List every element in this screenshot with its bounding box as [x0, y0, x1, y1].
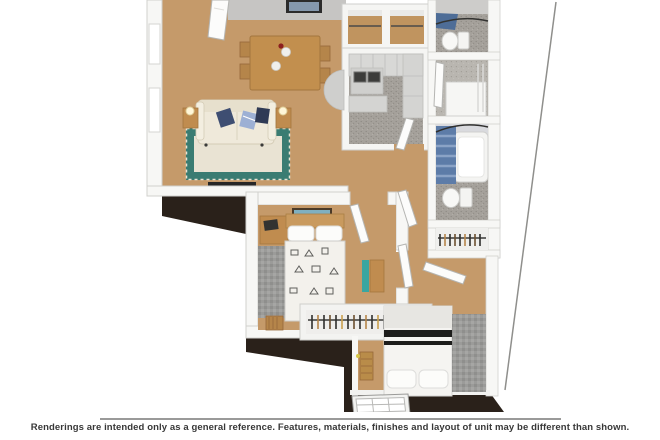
bedroom-2-west-wall: [352, 336, 358, 398]
plate: [282, 48, 291, 57]
dresser: [370, 260, 384, 292]
bath-west-wall: [428, 0, 436, 258]
bathroom-2: [436, 124, 488, 220]
yellow-item: [356, 354, 360, 358]
floor-plan-page: Renderings are intended only as a genera…: [0, 0, 660, 440]
pillow-dark-navy: [255, 107, 270, 124]
bathtub-2-basin: [458, 137, 484, 177]
wall-art-picture: [289, 2, 319, 11]
computer-monitor: [263, 219, 278, 231]
bathroom-1: [436, 0, 488, 52]
lamp-left: [186, 107, 194, 115]
living-room-west-wall: [147, 0, 162, 196]
window-living-2: [149, 88, 160, 132]
building-outer-edge: [505, 2, 556, 390]
dining-table: [250, 36, 320, 90]
disclaimer-text: Renderings are intended only as a genera…: [0, 422, 660, 433]
entry-closets: [342, 4, 430, 50]
bed-2-pillow-left: [387, 370, 416, 388]
linen-closet: [436, 228, 488, 250]
lower-cabinets: [349, 96, 387, 112]
exterior-wall-bedroom1-south: [246, 336, 350, 368]
kitchen-sink-right: [368, 72, 380, 82]
bedroom-2-rug: [452, 314, 486, 392]
plate: [272, 62, 281, 71]
utility-door: [434, 62, 444, 108]
utility-room: [434, 60, 488, 116]
sofa-foot: [204, 143, 207, 146]
dining-set: [240, 36, 330, 90]
bed-2-stripe-1: [384, 330, 452, 337]
floor-plan-rendering: [0, 0, 660, 412]
sofa-armrest-right: [268, 102, 276, 140]
desk: [260, 216, 288, 244]
sofa: [196, 100, 276, 147]
red-vase: [278, 43, 283, 48]
bed-1-pillow-left: [288, 226, 314, 241]
closet-shelf-1: [348, 10, 382, 16]
kitchen-sink-left: [354, 72, 366, 82]
dining-chair: [240, 42, 251, 57]
dining-chair: [240, 64, 251, 79]
side-table-left: [183, 107, 198, 128]
toilet-1: [442, 32, 469, 50]
bed-2-pillow-right: [419, 370, 448, 388]
bed-2: [384, 306, 452, 396]
bedroom-2-east-wall: [486, 256, 498, 396]
bathroom-column: [428, 0, 500, 258]
disclaimer-divider: [100, 418, 561, 420]
side-table-right: [276, 107, 291, 128]
window-living-1: [149, 24, 160, 64]
bed-1-pillow-right: [316, 226, 342, 241]
bedroom-1-chair: [266, 316, 283, 330]
bed-2-fold: [384, 306, 452, 328]
closet-shelf-2: [390, 10, 424, 16]
water-heater: [446, 82, 486, 116]
toilet-2: [443, 188, 473, 208]
bedroom-1-rug: [258, 246, 286, 318]
shower-curtain-2: [436, 126, 456, 184]
dining-chair: [319, 46, 330, 61]
teal-dresser: [362, 260, 369, 292]
bath-east-wall: [488, 0, 500, 258]
bed-2-stripe-2: [384, 341, 452, 345]
sofa-foot: [260, 143, 263, 146]
bedroom-2-window: [352, 394, 410, 412]
exterior-wall-living-south: [162, 194, 246, 234]
bathtub-1: [436, 0, 488, 14]
lamp-right: [279, 107, 287, 115]
cabinet-column-right: [403, 54, 423, 118]
